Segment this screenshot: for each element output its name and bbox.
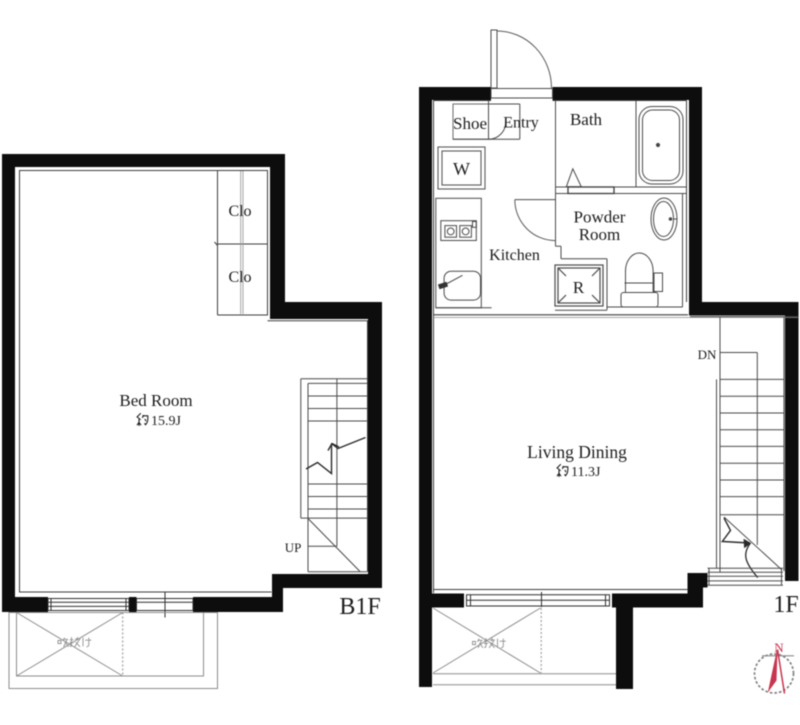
svg-text:Clo: Clo — [228, 269, 251, 286]
svg-text:N: N — [774, 640, 784, 655]
svg-text:Living Dining: Living Dining — [527, 442, 627, 462]
svg-text:Clo: Clo — [228, 203, 251, 220]
svg-text:Kitchen: Kitchen — [489, 247, 540, 264]
svg-text:B1F: B1F — [339, 594, 380, 620]
svg-text:15.9J: 15.9J — [151, 414, 182, 429]
svg-text:R: R — [573, 278, 585, 297]
svg-text:UP: UP — [285, 540, 302, 555]
svg-text:W: W — [453, 159, 470, 179]
svg-text:11.3J: 11.3J — [571, 465, 601, 480]
svg-text:DN: DN — [698, 347, 717, 362]
svg-text:Entry: Entry — [503, 115, 539, 132]
svg-text:Room: Room — [579, 225, 621, 244]
svg-text:Powder: Powder — [574, 208, 626, 227]
svg-text:Bed Room: Bed Room — [119, 391, 192, 410]
svg-text:Shoe: Shoe — [453, 114, 487, 133]
svg-text:Bath: Bath — [570, 110, 603, 129]
svg-text:1F: 1F — [773, 592, 798, 618]
